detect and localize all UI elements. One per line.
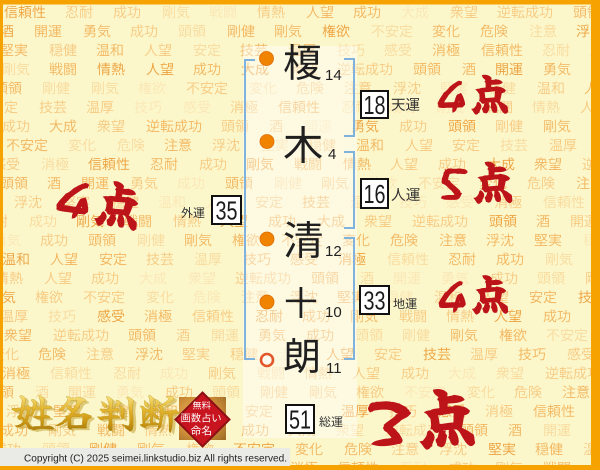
svg-text:33: 33 [364, 286, 386, 316]
svg-text:11: 11 [326, 360, 342, 377]
svg-text:35: 35 [216, 196, 238, 226]
svg-text:Copyright (C) 2025 seimei.link: Copyright (C) 2025 seimei.linkstudio.biz… [24, 453, 287, 465]
svg-text:12: 12 [325, 243, 342, 260]
svg-text:14: 14 [325, 67, 342, 84]
svg-text:18: 18 [364, 90, 386, 120]
svg-text:16: 16 [364, 179, 386, 209]
svg-text:4: 4 [328, 146, 336, 163]
svg-text:51: 51 [289, 405, 311, 435]
svg-text:10: 10 [325, 304, 342, 321]
